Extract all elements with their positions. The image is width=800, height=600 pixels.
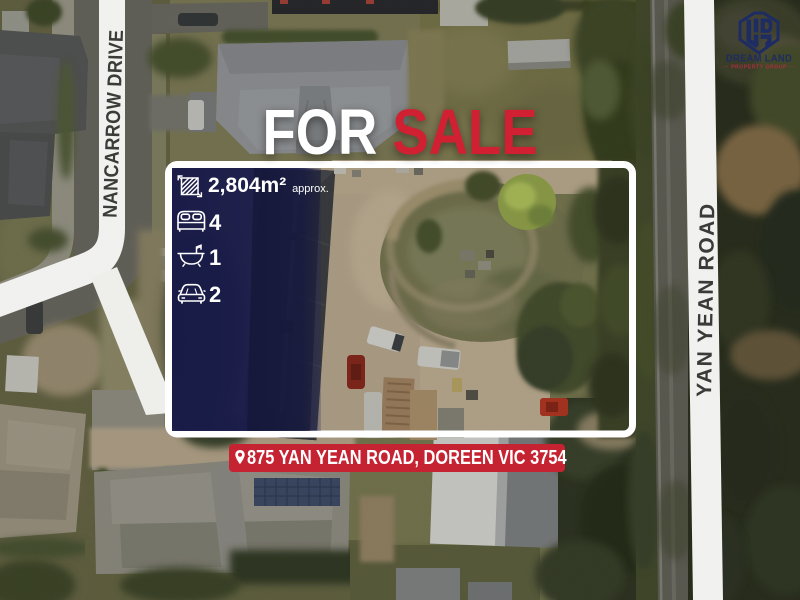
svg-text:DREAM LAND: DREAM LAND [726, 53, 792, 64]
svg-text:YAN YEAN ROAD: YAN YEAN ROAD [693, 202, 719, 397]
svg-text:···· PROPERTY GROUP ····: ···· PROPERTY GROUP ···· [723, 65, 795, 71]
